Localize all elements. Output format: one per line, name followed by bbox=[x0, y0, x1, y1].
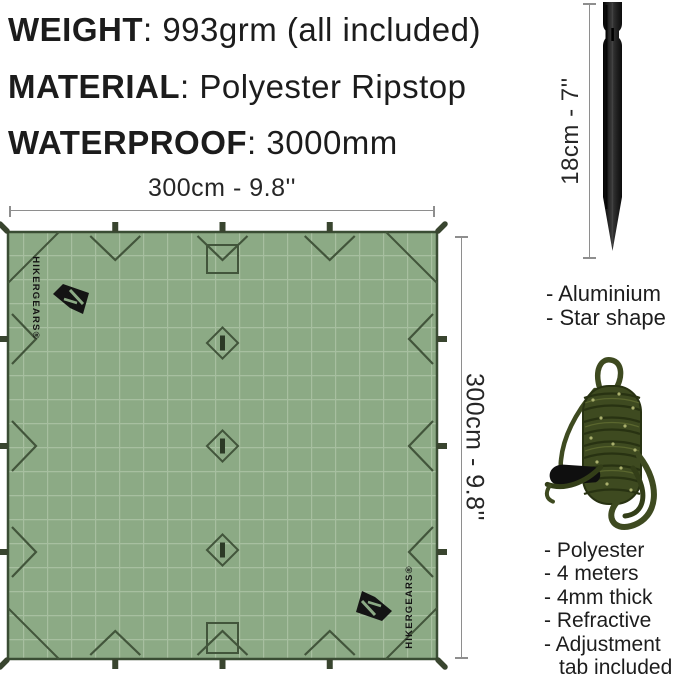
spec-weight-label: WEIGHT bbox=[8, 11, 143, 48]
rope-feature: - Polyester bbox=[544, 539, 672, 562]
spec-waterproof-label: WATERPROOF bbox=[8, 124, 247, 161]
rope-feature-list: - Polyester - 4 meters - 4mm thick - Ref… bbox=[544, 539, 672, 676]
dimension-tick bbox=[433, 206, 435, 217]
tarp-diagram: HIKERGEARS® HIKERGEARS® bbox=[0, 220, 468, 676]
dimension-tick bbox=[583, 257, 596, 259]
spec-material-label: MATERIAL bbox=[8, 68, 180, 105]
spec-weight-value: 993grm (all included) bbox=[162, 11, 481, 48]
stake-length-dimension-line bbox=[589, 4, 590, 258]
tarp-width-dimension-line bbox=[10, 210, 434, 211]
stake-length-label: 18cm - 7'' bbox=[557, 77, 585, 185]
stake-feature: - Star shape bbox=[546, 306, 666, 330]
brand-name: HIKERGEARS® bbox=[30, 256, 41, 340]
spec-material: MATERIAL: Polyester Ripstop bbox=[8, 68, 467, 106]
dimension-tick bbox=[9, 206, 11, 217]
stake-feature-list: - Aluminium - Star shape bbox=[546, 282, 666, 330]
brand-name: HIKERGEARS® bbox=[404, 565, 415, 649]
rope-feature: - 4mm thick bbox=[544, 586, 672, 609]
stake-feature: - Aluminium bbox=[546, 282, 666, 306]
spec-weight: WEIGHT: 993grm (all included) bbox=[8, 11, 481, 49]
tarp-width-label: 300cm - 9.8'' bbox=[148, 174, 296, 203]
spec-waterproof: WATERPROOF: 3000mm bbox=[8, 124, 398, 162]
dimension-tick bbox=[583, 3, 596, 5]
tent-stake-image bbox=[598, 1, 628, 256]
rope-coil bbox=[561, 360, 654, 527]
rope-feature: - 4 meters bbox=[544, 562, 672, 585]
guy-rope-image bbox=[535, 356, 677, 548]
stake-slot bbox=[611, 28, 614, 41]
product-infographic: WEIGHT: 993grm (all included) MATERIAL: … bbox=[0, 0, 679, 676]
spec-separator: : bbox=[143, 11, 162, 48]
rope-feature: - Adjustment bbox=[544, 633, 672, 656]
rope-feature: tab included bbox=[544, 656, 672, 676]
spec-separator: : bbox=[180, 68, 199, 105]
spec-material-value: Polyester Ripstop bbox=[199, 68, 466, 105]
spec-separator: : bbox=[247, 124, 266, 161]
rope-feature: - Refractive bbox=[544, 609, 672, 632]
spec-waterproof-value: 3000mm bbox=[266, 124, 397, 161]
